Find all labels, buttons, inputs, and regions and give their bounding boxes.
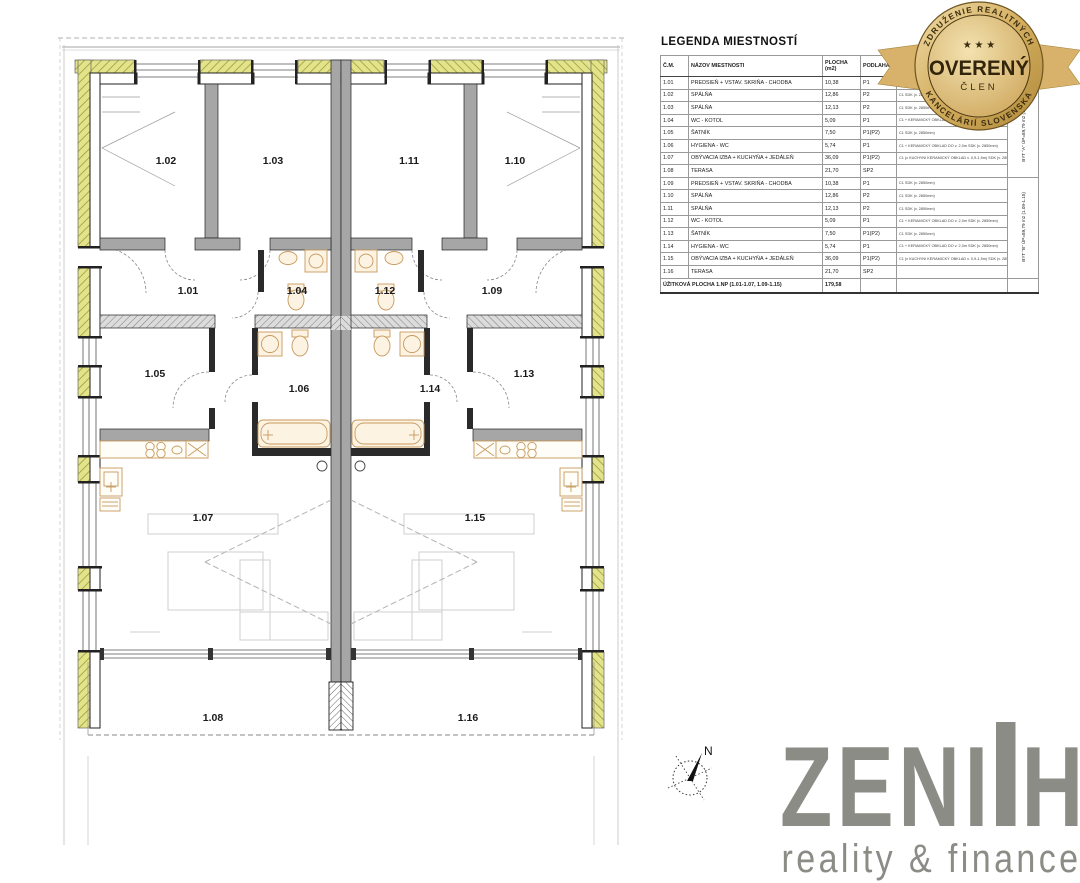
- legend-row: 1.07OBÝVACIA IZBA + KUCHYŇA + JEDÁLEŇ36,…: [661, 152, 1039, 165]
- logo-word-part2: H: [1022, 724, 1080, 851]
- legend-cell-finish: C1 (v KUCHYNI KERAMICKÝ OBKLAD v. 0,9-1,…: [897, 253, 1008, 266]
- legend-cell-num: 1.01: [661, 77, 689, 90]
- legend-cell-floor: P1(P2): [861, 228, 897, 241]
- legend-cell-finish: C1 SDK (v. 2850mm): [897, 177, 1008, 190]
- legend-cell-area: 10,38: [823, 77, 861, 90]
- legend-cell-area: 5,09: [823, 215, 861, 228]
- legend-cell-name: ŠATNÍK: [689, 228, 823, 241]
- room-label-1.11: 1.11: [399, 155, 419, 167]
- legend-cell-num: 1.06: [661, 139, 689, 152]
- legend-cell-area: 36,09: [823, 253, 861, 266]
- legend-total-label: ÚŽITKOVÁ PLOCHA 1.NP (1.01-1.07, 1.09-1.…: [661, 278, 823, 293]
- room-label-1.15: 1.15: [465, 512, 486, 524]
- legend-cell-finish: C1 SDK (v. 2850mm): [897, 228, 1008, 241]
- legend-cell-area: 7,50: [823, 127, 861, 140]
- room-label-1.04: 1.04: [287, 285, 308, 297]
- legend-cell-num: 1.08: [661, 165, 689, 178]
- north-label: N: [704, 744, 713, 758]
- legend-row: 1.10SPÁLŇA12,86P2C1 SDK (v. 2850mm): [661, 190, 1039, 203]
- legend-cell-name: HYGIENA - WC: [689, 139, 823, 152]
- page: 1.011.021.031.041.051.061.071.081.091.10…: [0, 0, 1080, 883]
- legend-cell-num: 1.02: [661, 89, 689, 102]
- logo-word-part1: ZENI: [780, 724, 993, 851]
- room-label-1.16: 1.16: [458, 712, 479, 724]
- legend-total-empty: [1008, 278, 1039, 293]
- legend-cell-floor: P2: [861, 190, 897, 203]
- legend-cell-name: OBÝVACIA IZBA + KUCHYŇA + JEDÁLEŇ: [689, 253, 823, 266]
- legend-row: 1.14HYGIENA - WC5,74P1C1 + KERAMICKÝ OBK…: [661, 240, 1039, 253]
- room-label-1.07: 1.07: [193, 512, 214, 524]
- legend-row: 1.09PREDSIEŇ + VSTAV. SKRIŇA - CHODBA10,…: [661, 177, 1039, 190]
- room-label-1.14: 1.14: [420, 383, 441, 395]
- legend-cell-finish: [897, 165, 1008, 178]
- logo-tagline: reality & finance: [782, 837, 1080, 881]
- legend-cell-name: OBÝVACIA IZBA + KUCHYŇA + JEDÁLEŇ: [689, 152, 823, 165]
- legend-cell-floor: P2: [861, 202, 897, 215]
- legend-cell-area: 21,70: [823, 165, 861, 178]
- legend-cell-floor: SP2: [861, 165, 897, 178]
- legend-cell-finish: C1 + KERAMICKÝ OBKLAD DO v. 2,0m SDK (v.…: [897, 215, 1008, 228]
- legend-cell-num: 1.13: [661, 228, 689, 241]
- legend-cell-area: 12,13: [823, 102, 861, 115]
- legend-total-value: 179,58: [823, 278, 861, 293]
- legend-row: 1.12WC - KOTOL5,09P1C1 + KERAMICKÝ OBKLA…: [661, 215, 1039, 228]
- room-label-1.03: 1.03: [263, 155, 284, 167]
- legend-row: 1.15OBÝVACIA IZBA + KUCHYŇA + JEDÁLEŇ36,…: [661, 253, 1039, 266]
- legend-cell-area: 7,50: [823, 228, 861, 241]
- room-label-1.01: 1.01: [178, 285, 199, 297]
- legend-cell-floor: P1(P2): [861, 152, 897, 165]
- legend-cell-name: HYGIENA - WC: [689, 240, 823, 253]
- badge-main-text: OVERENÝ: [929, 56, 1029, 80]
- legend-col-header: PLOCHA (m2): [823, 56, 861, 77]
- room-label-1.05: 1.05: [145, 368, 166, 380]
- legend-cell-finish: C1 + KERAMICKÝ OBKLAD DO v. 2,0m SDK (v.…: [897, 240, 1008, 253]
- legend-cell-floor: P1: [861, 177, 897, 190]
- legend-cell-area: 12,86: [823, 89, 861, 102]
- legend-cell-area: 10,38: [823, 177, 861, 190]
- legend-cell-num: 1.10: [661, 190, 689, 203]
- legend-total-empty: [861, 278, 897, 293]
- legend-cell-name: TERASA: [689, 165, 823, 178]
- legend-row: 1.16TERASA21,70SP2: [661, 265, 1039, 278]
- legend-cell-name: TERASA: [689, 265, 823, 278]
- legend-cell-num: 1.07: [661, 152, 689, 165]
- legend-total-empty: [897, 278, 1008, 293]
- legend-cell-name: SPÁLŇA: [689, 89, 823, 102]
- legend-cell-finish: C1 SDK (v. 2850mm): [897, 202, 1008, 215]
- legend-cell-name: WC - KOTOL: [689, 114, 823, 127]
- room-label-1.10: 1.10: [505, 155, 526, 167]
- legend-cell-finish: C1 (v KUCHYNI KERAMICKÝ OBKLAD v. 0,9-1,…: [897, 152, 1008, 165]
- legend-col-header: NÁZOV MIESTNOSTI: [689, 56, 823, 77]
- legend-row: 1.08TERASA21,70SP2: [661, 165, 1039, 178]
- legend-cell-num: 1.11: [661, 202, 689, 215]
- legend-cell-area: 12,86: [823, 190, 861, 203]
- badge-sub-text: ČLEN: [960, 82, 997, 93]
- north-arrow-icon: N: [658, 740, 730, 822]
- legend-cell-name: SPÁLŇA: [689, 190, 823, 203]
- legend-cell-area: 21,70: [823, 265, 861, 278]
- room-label-1.13: 1.13: [514, 368, 535, 380]
- legend-cell-num: 1.09: [661, 177, 689, 190]
- legend-cell-area: 12,13: [823, 202, 861, 215]
- legend-cell-finish: C1 + KERAMICKÝ OBKLAD DO v. 2,0m SDK (v.…: [897, 139, 1008, 152]
- legend-cell-floor: SP2: [861, 265, 897, 278]
- room-label-1.09: 1.09: [482, 285, 503, 297]
- legend-cell-area: 36,09: [823, 152, 861, 165]
- legend-cell-finish: C1 SDK (v. 2850mm): [897, 190, 1008, 203]
- legend-cell-name: WC - KOTOL: [689, 215, 823, 228]
- legend-cell-floor: P1(P2): [861, 253, 897, 266]
- legend-cell-area: 5,74: [823, 240, 861, 253]
- legend-cell-num: 1.04: [661, 114, 689, 127]
- legend-cell-name: SPÁLŇA: [689, 102, 823, 115]
- zenith-logo: ZENI H reality & finance: [780, 722, 1080, 883]
- legend-cell-num: 1.15: [661, 253, 689, 266]
- legend-cell-area: 5,09: [823, 114, 861, 127]
- verified-badge: ZDRUŽENIE REALITNÝCH KANCELÁRIÍ SLOVENSK…: [876, 0, 1080, 136]
- legend-cell-name: PREDSIEŇ + VSTAV. SKRIŇA - CHODBA: [689, 77, 823, 90]
- flat-b-label: BYT "B" ÚP=89,79 m2 (1.09-1.15): [1008, 177, 1039, 278]
- legend-cell-name: ŠATNÍK: [689, 127, 823, 140]
- legend-cell-name: PREDSIEŇ + VSTAV. SKRIŇA - CHODBA: [689, 177, 823, 190]
- legend-row: 1.06HYGIENA - WC5,74P1C1 + KERAMICKÝ OBK…: [661, 139, 1039, 152]
- legend-row: 1.11SPÁLŇA12,13P2C1 SDK (v. 2850mm): [661, 202, 1039, 215]
- legend-col-header: Č.M.: [661, 56, 689, 77]
- room-label-1.12: 1.12: [375, 285, 396, 297]
- legend-cell-finish: [897, 265, 1008, 278]
- legend-row: 1.13ŠATNÍK7,50P1(P2)C1 SDK (v. 2850mm): [661, 228, 1039, 241]
- legend-cell-floor: P1: [861, 215, 897, 228]
- legend-cell-num: 1.16: [661, 265, 689, 278]
- legend-cell-num: 1.05: [661, 127, 689, 140]
- legend-cell-name: SPÁLŇA: [689, 202, 823, 215]
- room-label-1.06: 1.06: [289, 383, 310, 395]
- logo-t-bar: [996, 722, 1016, 826]
- legend-cell-area: 5,74: [823, 139, 861, 152]
- room-label-1.02: 1.02: [156, 155, 177, 167]
- legend-cell-floor: P1: [861, 139, 897, 152]
- legend-cell-num: 1.14: [661, 240, 689, 253]
- legend-total-row: ÚŽITKOVÁ PLOCHA 1.NP (1.01-1.07, 1.09-1.…: [661, 278, 1039, 293]
- room-label-1.08: 1.08: [203, 712, 224, 724]
- legend-cell-num: 1.12: [661, 215, 689, 228]
- legend-cell-floor: P1: [861, 240, 897, 253]
- plan-left-half: [58, 38, 341, 845]
- badge-stars-icon: ★ ★ ★: [963, 40, 995, 51]
- legend-cell-num: 1.03: [661, 102, 689, 115]
